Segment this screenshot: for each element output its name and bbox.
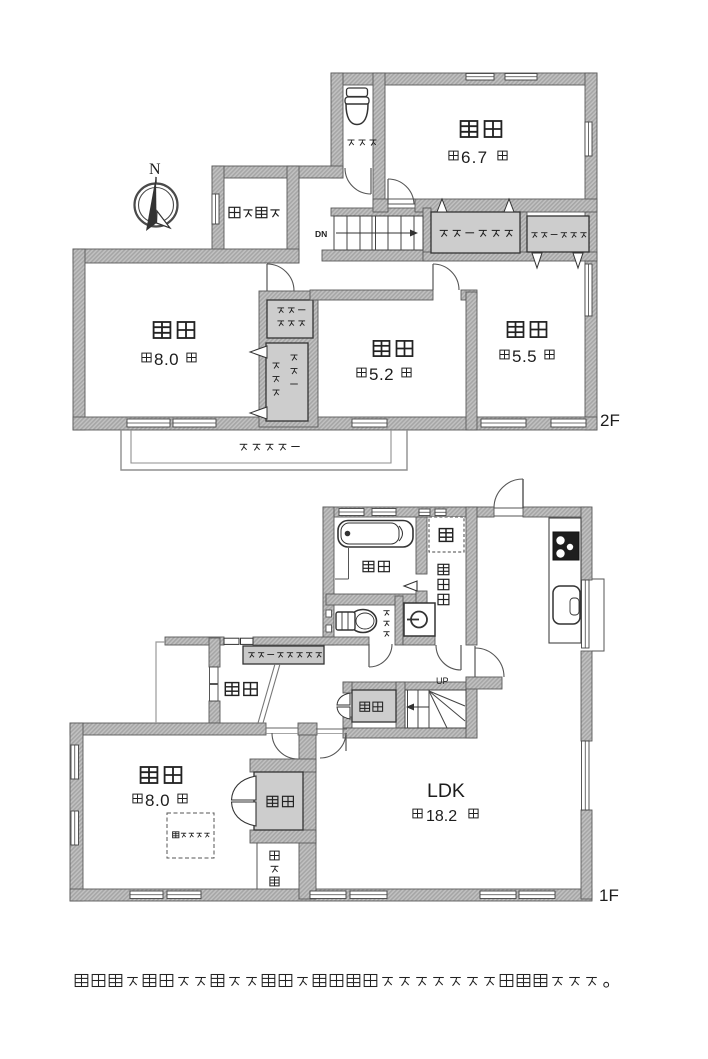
svg-text:5.5: 5.5 bbox=[512, 347, 537, 366]
svg-text:1F: 1F bbox=[599, 886, 619, 905]
svg-text:5.2: 5.2 bbox=[369, 365, 394, 384]
svg-text:N: N bbox=[149, 161, 161, 178]
svg-text:8.0: 8.0 bbox=[145, 791, 170, 810]
svg-text:UP: UP bbox=[436, 676, 449, 686]
svg-text:LDK: LDK bbox=[427, 780, 465, 802]
svg-text:8.0: 8.0 bbox=[154, 350, 179, 369]
svg-text:18.2: 18.2 bbox=[426, 808, 457, 825]
svg-text:6.7: 6.7 bbox=[461, 148, 488, 167]
svg-text:2F: 2F bbox=[600, 411, 620, 430]
svg-text:DN: DN bbox=[315, 229, 327, 239]
